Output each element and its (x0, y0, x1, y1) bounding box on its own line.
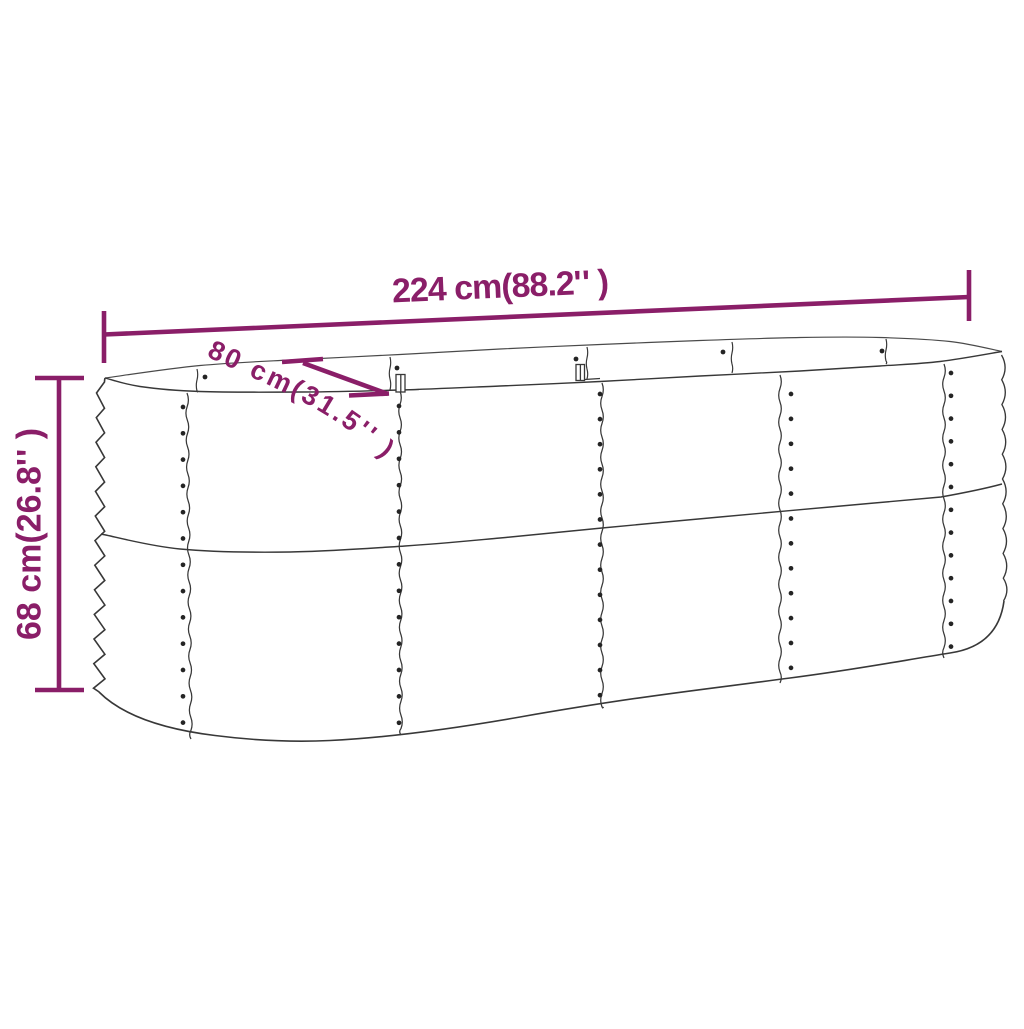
svg-text:68 cm(26.8'' ): 68 cm(26.8'' ) (11, 428, 49, 640)
